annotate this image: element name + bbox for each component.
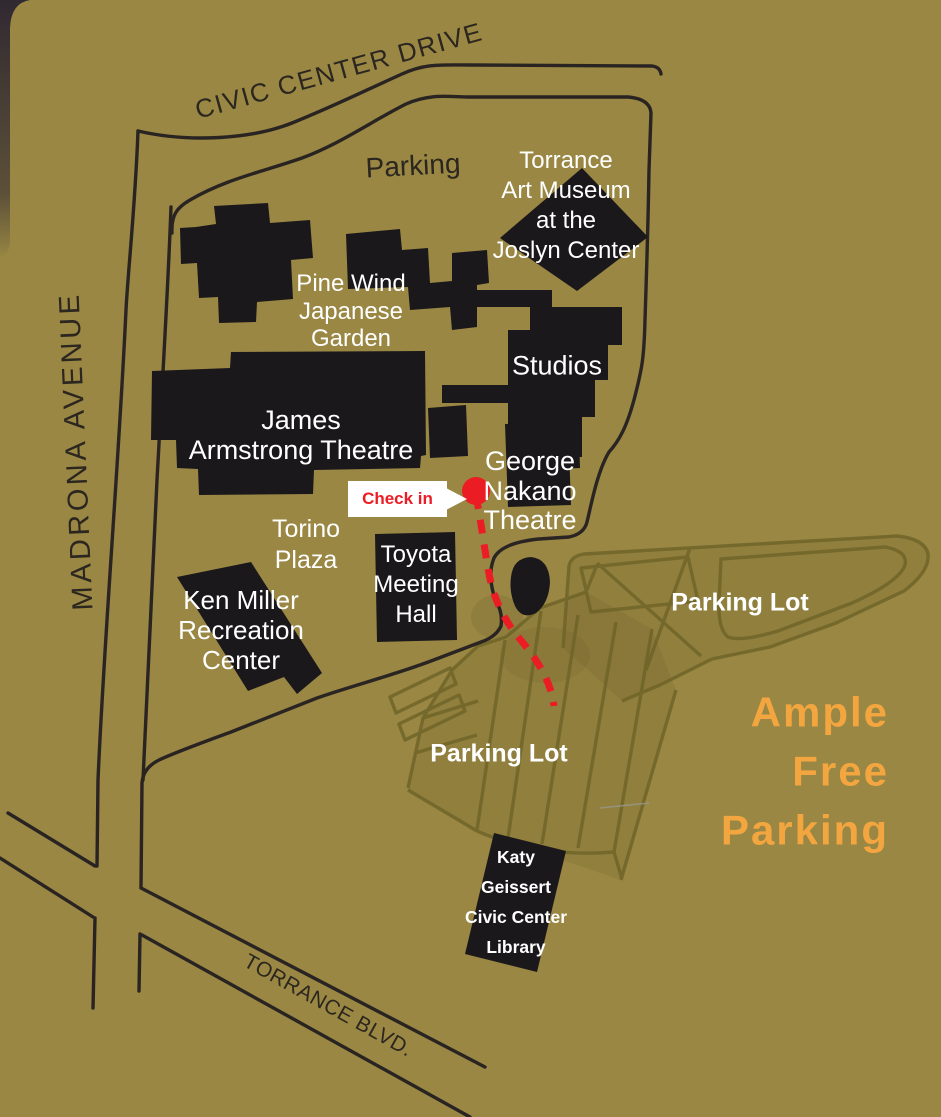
road-torrance-blvd-north (8, 813, 95, 866)
road-civic-center-drive-outer (138, 65, 661, 138)
building-torrance-art-museum (500, 168, 648, 291)
building-pine-wind-west (180, 203, 313, 323)
page-edge-shadow (0, 0, 30, 259)
road-madrona-avenue-east (143, 207, 171, 780)
civic-center-map: CIVIC CENTER DRIVE MADRONA AVENUE TORRAN… (0, 0, 941, 1117)
building-annex (428, 405, 468, 458)
road-torrance-blvd-south (0, 858, 470, 1117)
building-ken-miller-recreation-center (177, 562, 322, 694)
building-pine-wind-east (346, 229, 489, 330)
road-madrona-avenue-east-south (139, 934, 140, 991)
callout-arrow-icon (446, 488, 467, 510)
check-in-callout-label: Check in (362, 489, 433, 509)
building-katy-geissert-library (465, 833, 566, 972)
road-madrona-avenue-west (97, 131, 138, 866)
map-graphics (0, 0, 941, 1117)
parking-lot-fills (408, 536, 928, 880)
road-madrona-avenue-west-south (93, 918, 95, 1008)
check-in-callout: Check in (348, 481, 447, 517)
building-toyota-meeting-hall (375, 532, 457, 642)
building-james-armstrong-theatre (151, 351, 426, 495)
